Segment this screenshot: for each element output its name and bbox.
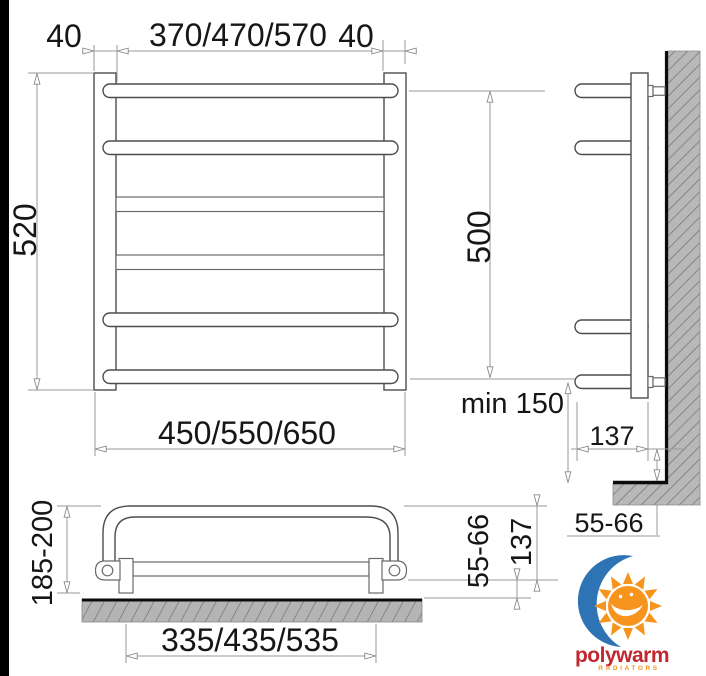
plan-bar-inner <box>115 517 390 561</box>
logo-brand-text: polywarm <box>575 644 669 667</box>
dim-height-500: 500 <box>461 210 497 263</box>
front-round-bar-3 <box>103 313 398 327</box>
plan-bar-outer <box>103 506 398 561</box>
dim-plan-55-66: 55-66 <box>463 514 495 588</box>
plan-left-block <box>119 559 133 594</box>
front-round-bar-4 <box>103 370 398 384</box>
polywarm-logo: polywarm RADIATORS <box>575 555 669 672</box>
plan-wall-tube <box>133 562 369 576</box>
dim-plan-137: 137 <box>506 518 538 566</box>
plan-left-hole <box>102 565 113 576</box>
side-bottom-connector-pipe <box>653 378 665 387</box>
front-view-dimensions: 40 370/470/570 40 520 450/550/650 <box>7 17 417 456</box>
dim-top-left-40: 40 <box>46 18 82 54</box>
front-left-post <box>94 73 116 390</box>
dim-side-137: 137 <box>589 421 634 451</box>
side-bottom-connector-collar <box>648 377 653 388</box>
dim-width-450: 450/550/650 <box>158 415 336 451</box>
left-edge-bar <box>0 0 9 676</box>
front-flat-bar-2 <box>116 255 384 270</box>
plan-wall <box>82 599 422 622</box>
dim-min-150: min 150 <box>461 388 564 420</box>
logo-sub-text: RADIATORS <box>598 665 659 672</box>
plan-view <box>82 506 422 622</box>
side-top-connector-collar <box>648 86 653 97</box>
side-post <box>631 73 648 398</box>
dim-plan-width: 335/435/535 <box>161 622 339 658</box>
dim-height-520: 520 <box>7 203 43 256</box>
plan-right-block <box>369 559 383 594</box>
dim-side-55-66: 55-66 <box>574 508 643 538</box>
dim-top-right-40: 40 <box>338 18 374 54</box>
drawing-canvas: 40 370/470/570 40 520 450/550/650 <box>0 0 706 676</box>
side-top-connector-pipe <box>653 87 665 96</box>
logo-sun-icon <box>594 572 662 640</box>
front-round-bar-2 <box>103 141 398 155</box>
front-round-bar-1 <box>103 84 398 98</box>
front-flat-bar-1 <box>116 197 384 212</box>
dim-plan-185-200: 185-200 <box>27 500 59 606</box>
dim-top-width: 370/470/570 <box>149 17 327 53</box>
front-view <box>94 73 406 390</box>
radiator-dimension-drawing: 40 370/470/570 40 520 450/550/650 <box>0 0 706 676</box>
plan-right-hole <box>389 565 400 576</box>
front-right-post <box>384 73 406 390</box>
